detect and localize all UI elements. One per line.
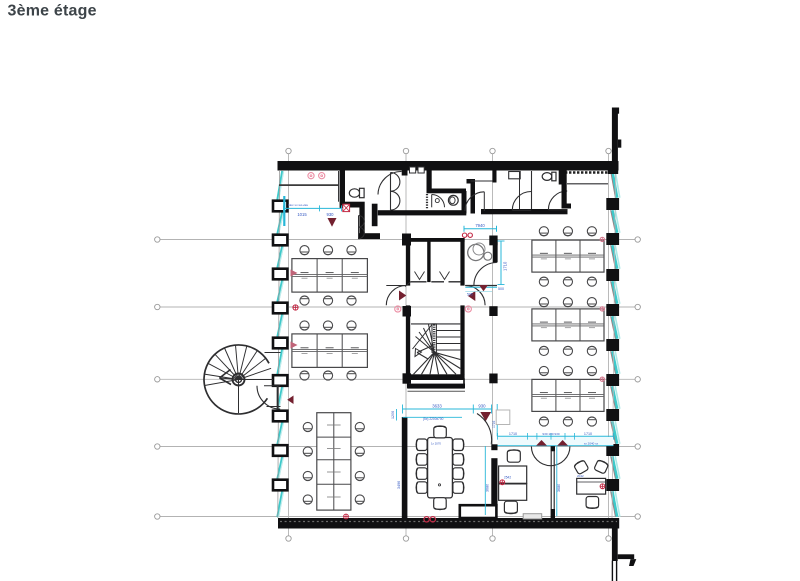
svg-text:1206: 1206 [391, 411, 395, 419]
svg-text:1716: 1716 [492, 420, 496, 428]
svg-text:3496: 3496 [397, 481, 401, 489]
svg-text:xx 2040 xx: xx 2040 xx [584, 441, 599, 445]
svg-text:930: 930 [478, 404, 486, 409]
svg-text:3633: 3633 [432, 404, 442, 409]
svg-text:1015: 1015 [297, 212, 307, 217]
svg-text:bloc xx wc+lav: bloc xx wc+lav [288, 203, 308, 207]
svg-text:(5x) 2200x700: (5x) 2200x700 [423, 417, 444, 421]
svg-text:3ème étage: 3ème étage [8, 2, 97, 19]
svg-text:2042: 2042 [577, 474, 584, 478]
svg-text:3680: 3680 [486, 484, 490, 492]
svg-text:7940: 7940 [475, 223, 485, 228]
svg-text:505: 505 [467, 293, 473, 297]
svg-text:930: 930 [327, 212, 335, 217]
svg-text:930 100 930: 930 100 930 [542, 432, 559, 436]
svg-text:1710: 1710 [503, 261, 508, 271]
svg-text:1x 2070: 1x 2070 [431, 442, 441, 446]
svg-text:1710: 1710 [509, 432, 517, 436]
svg-text:3680: 3680 [557, 484, 561, 492]
svg-text:2542: 2542 [504, 476, 511, 480]
svg-text:1710: 1710 [584, 432, 592, 436]
svg-text:500: 500 [498, 287, 504, 291]
